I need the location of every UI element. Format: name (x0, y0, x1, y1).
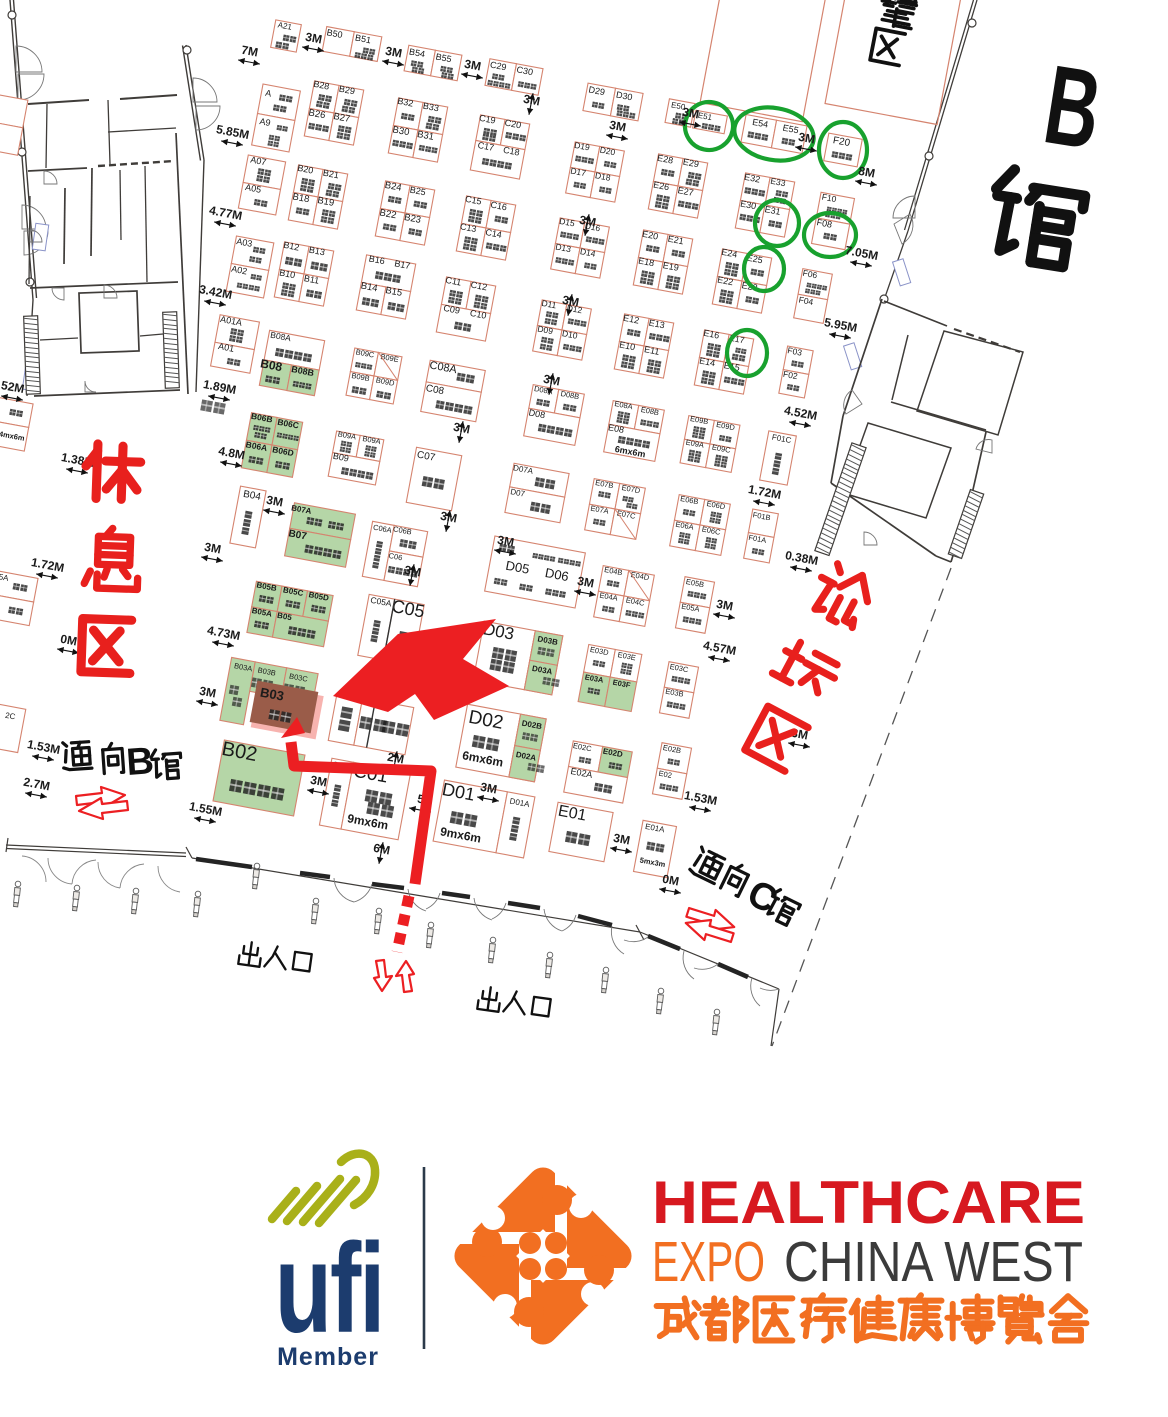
svg-text:Member: Member (277, 1343, 379, 1371)
svg-text:HEALTHCARE: HEALTHCARE (652, 1169, 1085, 1236)
svg-text:EXPO: EXPO (652, 1230, 765, 1294)
svg-text:B: B (125, 740, 155, 784)
svg-text:CHINA WEST: CHINA WEST (784, 1230, 1083, 1294)
svg-text:ufi: ufi (275, 1217, 384, 1359)
svg-text:A9: A9 (259, 116, 272, 128)
svg-text:2C: 2C (4, 711, 16, 722)
